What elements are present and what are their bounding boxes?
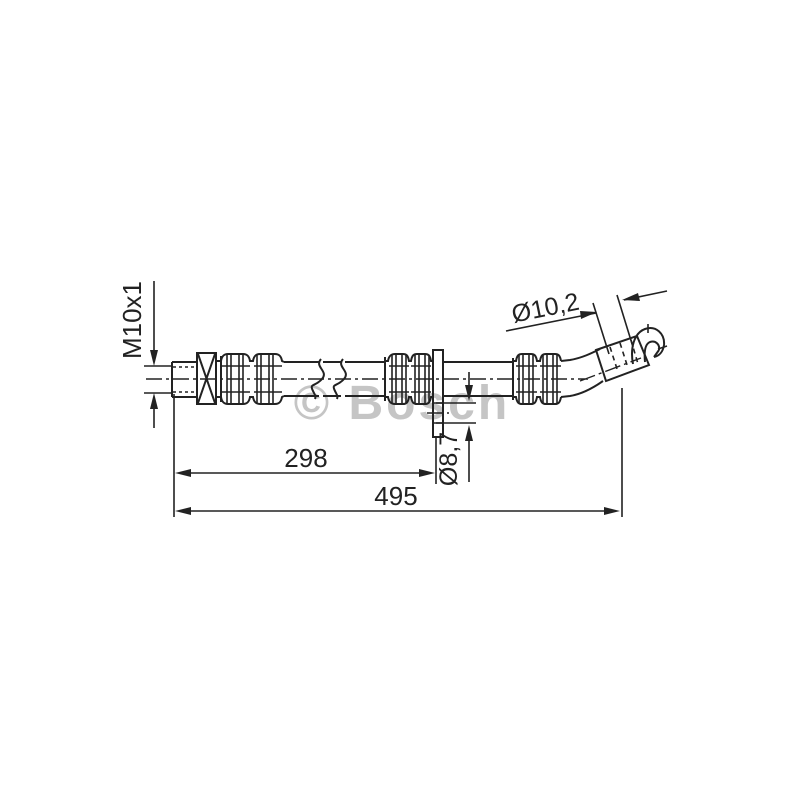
drawing-canvas: © Bosch (0, 0, 800, 800)
dimension-hose-od: Ø10,2 (506, 288, 667, 354)
dim495-label: 495 (374, 481, 417, 511)
dim298-arrow-left (175, 469, 191, 477)
dim495-arrow-right (604, 507, 620, 515)
m10x1-arrow-down (150, 350, 158, 366)
dim495-arrow-left (175, 507, 191, 515)
brake-hose-technical-drawing: © Bosch (0, 0, 800, 800)
dim298-arrow-right (419, 469, 435, 477)
dimension-m10x1: M10x1 (117, 281, 172, 428)
m10x1-arrow-up (150, 393, 158, 409)
sleeve-left-ribs (222, 355, 282, 403)
od-arrow-left (622, 293, 640, 301)
hole-diameter-label: Ø8,7 (435, 432, 463, 486)
end-fitting (596, 324, 667, 381)
m10x1-label: M10x1 (117, 281, 147, 359)
od-arrow-right (580, 311, 597, 319)
dim298-label: 298 (284, 443, 327, 473)
